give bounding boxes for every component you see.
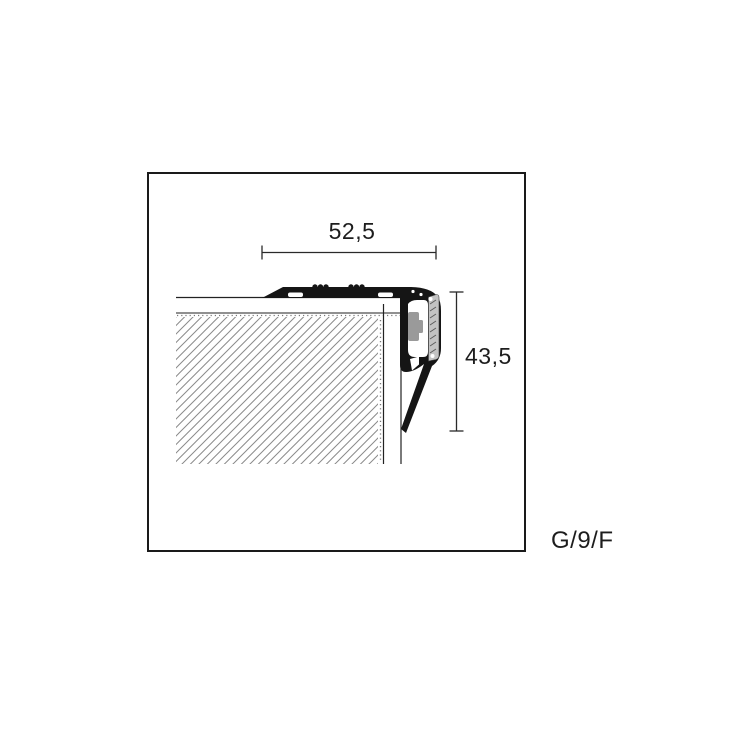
cavity-block-nose xyxy=(418,320,423,333)
insert-strip xyxy=(429,295,440,362)
rib-bump xyxy=(312,284,317,289)
corner-dot xyxy=(411,290,414,293)
page-canvas: 52,5 43,5 G/9/F xyxy=(0,0,735,735)
tread-slot xyxy=(378,293,393,298)
rib-bump xyxy=(323,284,328,289)
rib-bump xyxy=(354,284,359,289)
tread-slot xyxy=(288,293,303,298)
height-dimension-label: 43,5 xyxy=(465,344,512,369)
insert-notch-bottom xyxy=(431,354,435,358)
height-dimension-lines xyxy=(450,292,464,431)
product-code-label: G/9/F xyxy=(551,528,614,554)
profile-cross-section-drawing xyxy=(0,0,735,735)
rib-bump xyxy=(359,284,364,289)
insert-notch-top xyxy=(429,297,433,301)
substrate-hatch xyxy=(176,317,378,464)
cavity-block-body xyxy=(408,312,419,341)
corner-dot xyxy=(419,293,422,296)
rib-bump xyxy=(318,284,323,289)
width-dimension-lines xyxy=(262,246,436,260)
riser-board-lines xyxy=(384,300,402,464)
width-dimension-label: 52,5 xyxy=(292,219,412,244)
rib-bump xyxy=(348,284,353,289)
cavity-block xyxy=(408,312,423,341)
